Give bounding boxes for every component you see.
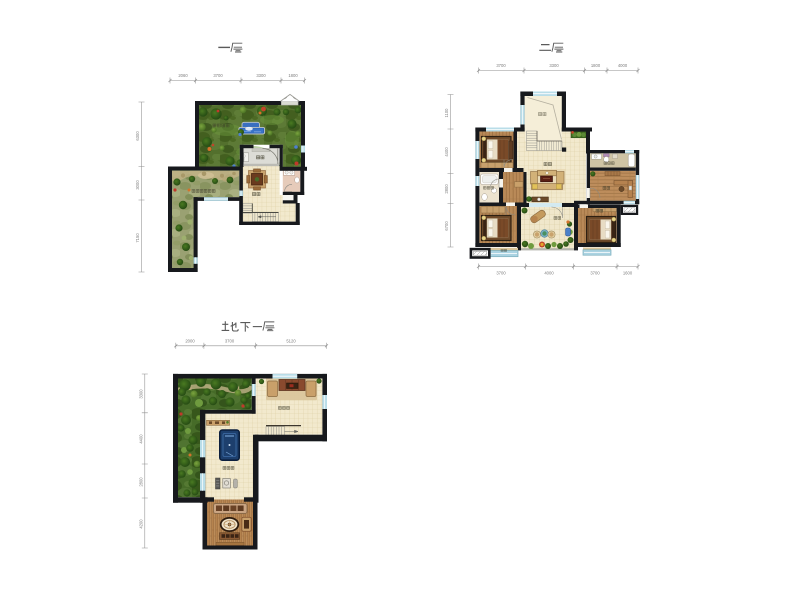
- svg-text:4400: 4400: [444, 147, 449, 157]
- svg-text:3300: 3300: [549, 63, 559, 68]
- svg-text:2000: 2000: [185, 338, 195, 343]
- svg-text:6300: 6300: [135, 131, 140, 141]
- svg-text:3700: 3700: [496, 63, 506, 68]
- svg-text:3300: 3300: [138, 389, 143, 399]
- svg-text:3700: 3700: [590, 271, 600, 276]
- svg-text:2800: 2800: [444, 184, 449, 194]
- svg-text:4200: 4200: [138, 519, 143, 529]
- svg-text:1800: 1800: [288, 73, 298, 78]
- svg-text:3700: 3700: [225, 338, 235, 343]
- svg-text:3700: 3700: [213, 73, 223, 78]
- svg-text:1100: 1100: [444, 108, 449, 118]
- svg-text:3300: 3300: [256, 73, 266, 78]
- svg-text:2060: 2060: [178, 73, 188, 78]
- svg-text:6700: 6700: [444, 221, 449, 231]
- svg-text:4000: 4000: [618, 63, 628, 68]
- svg-text:4000: 4000: [544, 271, 554, 276]
- svg-text:1600: 1600: [623, 271, 633, 276]
- svg-text:7150: 7150: [135, 233, 140, 243]
- svg-text:3700: 3700: [496, 271, 506, 276]
- svg-text:2800: 2800: [138, 477, 143, 487]
- svg-text:4400: 4400: [138, 434, 143, 444]
- svg-text:5120: 5120: [286, 338, 296, 343]
- svg-text:3000: 3000: [135, 180, 140, 190]
- svg-text:1800: 1800: [591, 63, 601, 68]
